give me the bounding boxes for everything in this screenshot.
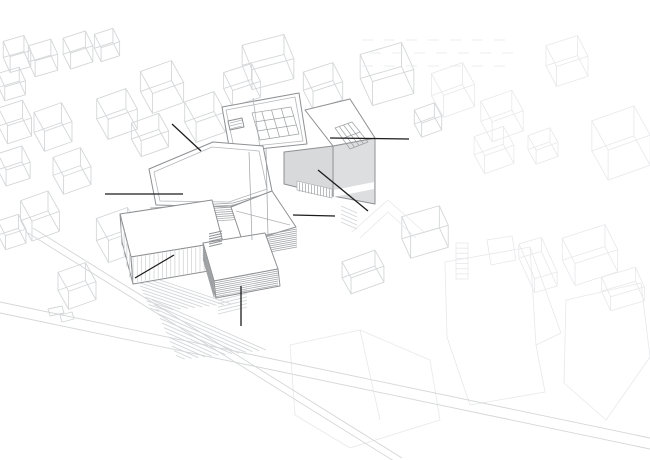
context-stair bbox=[456, 243, 468, 279]
context-building bbox=[562, 224, 617, 285]
context-building bbox=[474, 126, 514, 173]
context-building bbox=[402, 206, 448, 258]
arrow-mid-right bbox=[293, 215, 335, 216]
lower-right-block-a bbox=[445, 247, 561, 405]
context-building bbox=[58, 263, 96, 310]
context-building bbox=[0, 214, 26, 249]
context-building bbox=[94, 28, 119, 61]
arrow-up-left bbox=[172, 124, 201, 151]
context-building bbox=[21, 191, 60, 241]
context-building bbox=[34, 103, 72, 152]
context-building bbox=[360, 42, 414, 105]
context-building bbox=[63, 31, 93, 69]
diagram-canvas bbox=[0, 0, 650, 460]
site-axonometric-diagram bbox=[0, 0, 650, 460]
context-building bbox=[242, 34, 294, 89]
context-building bbox=[519, 237, 557, 292]
context-building bbox=[602, 267, 645, 310]
context-building bbox=[224, 64, 261, 107]
context-building bbox=[528, 128, 558, 164]
context-building bbox=[546, 36, 588, 87]
context-buildings bbox=[0, 28, 650, 460]
context-building bbox=[592, 106, 650, 180]
context-building bbox=[28, 39, 57, 77]
main-building bbox=[120, 93, 375, 314]
context-building bbox=[342, 250, 384, 294]
path-chevron-outer bbox=[352, 200, 424, 232]
context-building bbox=[53, 148, 91, 195]
path-chevron-inner bbox=[360, 212, 416, 238]
context-building bbox=[414, 103, 441, 137]
context-building bbox=[0, 146, 30, 186]
context-building bbox=[140, 61, 183, 114]
context-building bbox=[185, 92, 226, 143]
context-building bbox=[481, 90, 523, 142]
context-building bbox=[0, 100, 32, 144]
terrace-hatch-lower bbox=[152, 300, 266, 360]
context-building bbox=[3, 35, 31, 72]
context-building bbox=[0, 67, 25, 101]
